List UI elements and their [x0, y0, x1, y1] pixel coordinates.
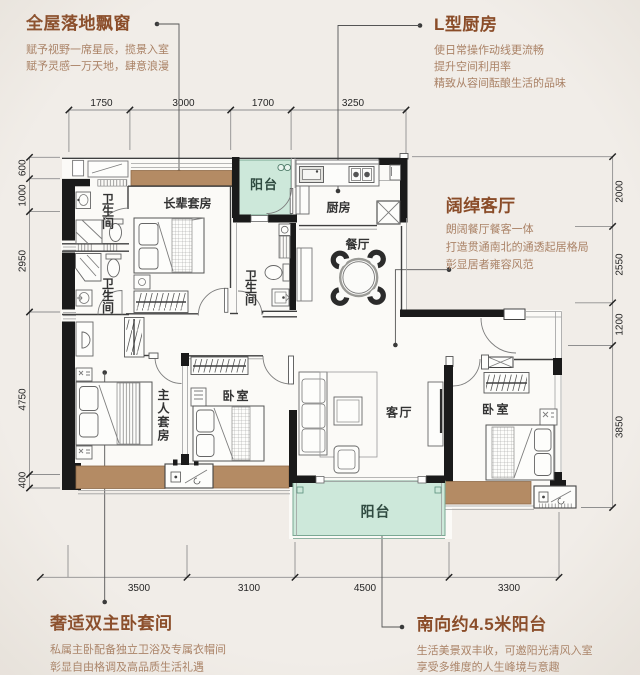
svg-text:3300: 3300: [498, 583, 521, 594]
svg-text:4750: 4750: [18, 388, 29, 411]
svg-text:生活美景双丰收，可邀阳光清风入室: 生活美景双丰收，可邀阳光清风入室: [417, 643, 593, 657]
svg-text:人: 人: [157, 401, 170, 416]
svg-text:卧室: 卧室: [223, 388, 251, 403]
svg-text:餐厅: 餐厅: [346, 237, 370, 252]
svg-text:3000: 3000: [172, 98, 195, 109]
svg-text:享受多维度的人生峰境与意趣: 享受多维度的人生峰境与意趣: [417, 660, 560, 674]
svg-text:彰显居者雍容风范: 彰显居者雍容风范: [446, 257, 534, 271]
svg-text:600: 600: [18, 159, 29, 176]
svg-text:赋予灵感一万天地，肆意浪漫: 赋予灵感一万天地，肆意浪漫: [26, 59, 169, 73]
svg-text:奢适双主卧套间: 奢适双主卧套间: [49, 613, 173, 633]
svg-text:间: 间: [245, 292, 257, 307]
svg-text:客厅: 客厅: [385, 405, 413, 420]
svg-text:精致从容间酝酿生活的品味: 精致从容间酝酿生活的品味: [434, 75, 566, 89]
svg-text:私属主卧配备独立卫浴及专属衣帽间: 私属主卧配备独立卫浴及专属衣帽间: [50, 642, 226, 656]
svg-text:2000: 2000: [615, 180, 626, 203]
svg-text:2950: 2950: [18, 249, 29, 272]
svg-text:阳台: 阳台: [250, 177, 278, 192]
svg-text:打造贯通南北的通透起居格局: 打造贯通南北的通透起居格局: [446, 240, 589, 254]
svg-text:彰显自由格调及高品质生活礼遇: 彰显自由格调及高品质生活礼遇: [50, 660, 204, 674]
svg-text:3100: 3100: [238, 583, 261, 594]
svg-text:赋予视野一席星辰，揽景入室: 赋予视野一席星辰，揽景入室: [26, 42, 169, 56]
svg-text:2550: 2550: [615, 253, 626, 276]
svg-text:阳台: 阳台: [361, 504, 391, 520]
svg-text:使日常操作动线更流畅: 使日常操作动线更流畅: [434, 43, 544, 57]
svg-text:长辈套房: 长辈套房: [164, 196, 212, 211]
svg-text:4500: 4500: [354, 583, 377, 594]
svg-text:3250: 3250: [342, 98, 365, 109]
svg-text:3500: 3500: [128, 583, 151, 594]
svg-text:主: 主: [157, 387, 169, 402]
svg-text:南向约4.5米阳台: 南向约4.5米阳台: [417, 614, 547, 634]
svg-text:1200: 1200: [615, 313, 626, 336]
svg-text:阔绰客厅: 阔绰客厅: [446, 196, 516, 216]
svg-text:卧室: 卧室: [482, 402, 511, 417]
svg-text:朗阔餐厅餐客一体: 朗阔餐厅餐客一体: [446, 222, 534, 236]
svg-text:厨房: 厨房: [327, 200, 351, 215]
svg-text:L型厨房: L型厨房: [434, 14, 497, 34]
svg-text:400: 400: [18, 471, 29, 488]
svg-text:1000: 1000: [18, 184, 29, 207]
svg-text:提升空间利用率: 提升空间利用率: [434, 59, 511, 73]
svg-text:1700: 1700: [252, 98, 275, 109]
svg-text:间: 间: [102, 216, 114, 231]
svg-text:全屋落地飘窗: 全屋落地飘窗: [25, 13, 131, 33]
svg-text:间: 间: [102, 300, 114, 315]
svg-text:3850: 3850: [615, 415, 626, 438]
svg-text:房: 房: [157, 428, 169, 443]
svg-text:1750: 1750: [90, 98, 113, 109]
svg-text:套: 套: [156, 414, 170, 429]
